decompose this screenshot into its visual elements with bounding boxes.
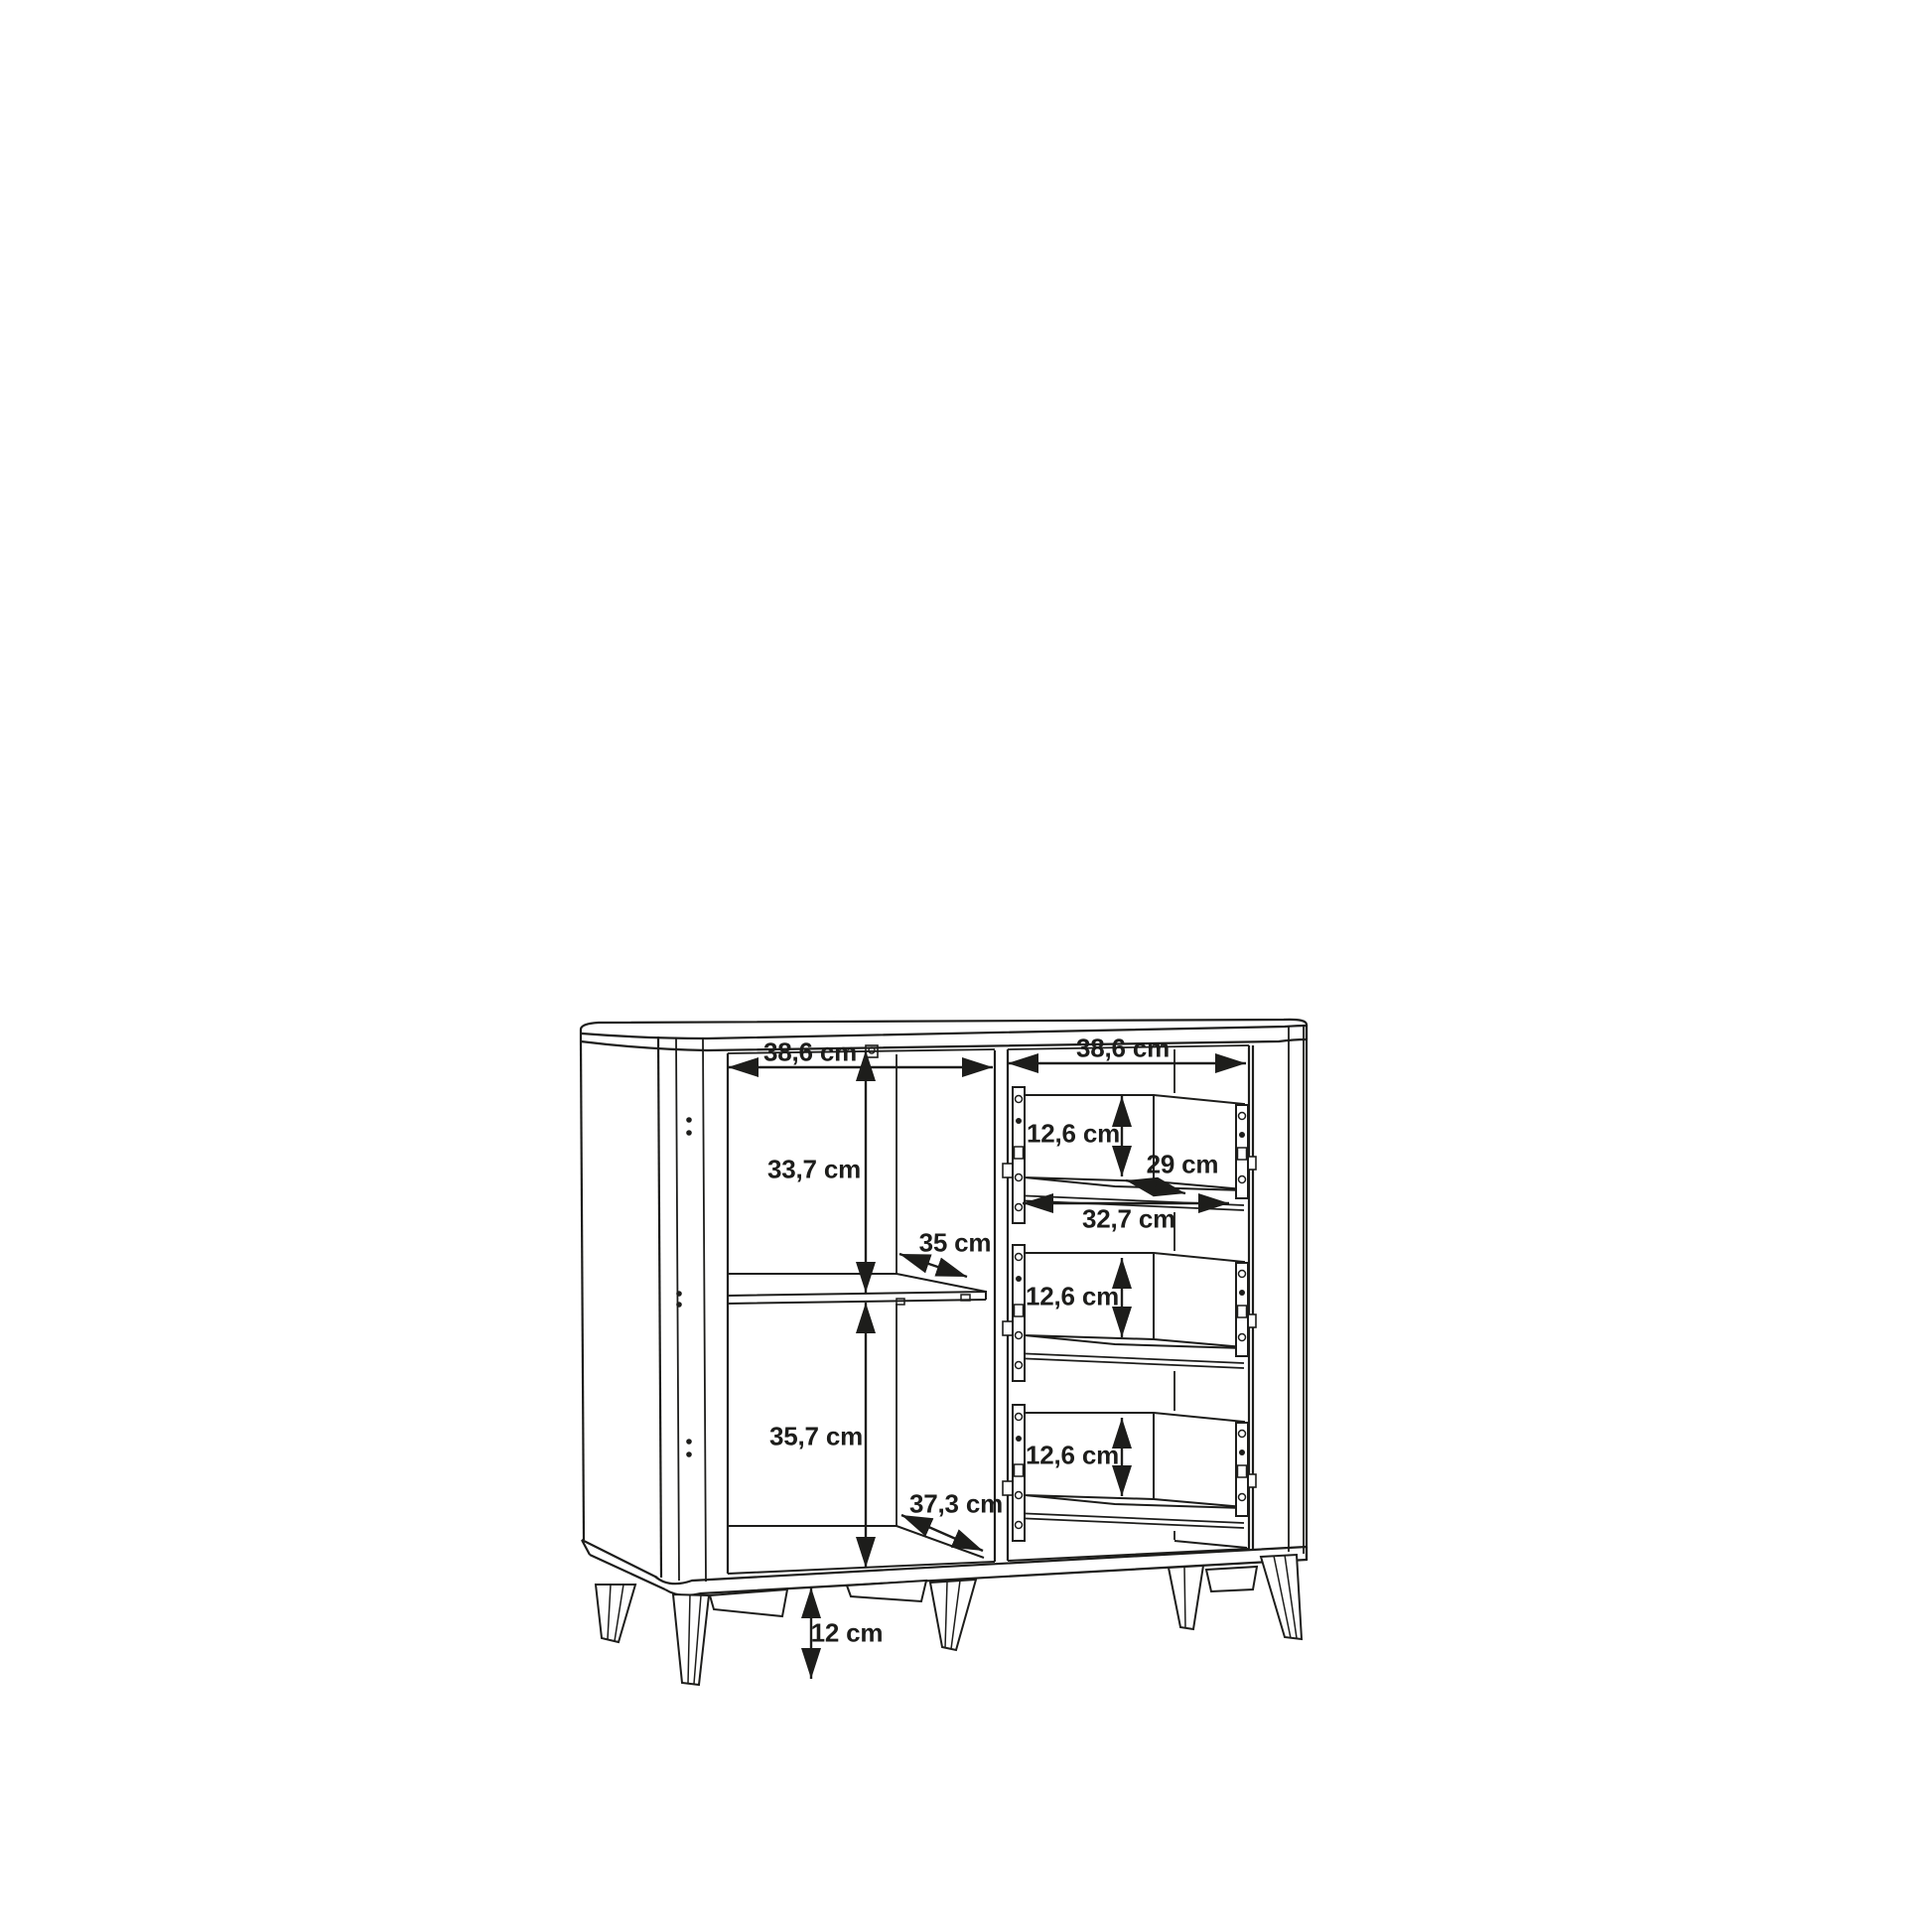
left-side-front-edge — [658, 1036, 661, 1578]
dim-label-drawer-middle-height: 12,6 cm — [1026, 1282, 1119, 1312]
dim-label-left-lower-height: 35,7 cm — [769, 1422, 863, 1452]
leg-bracket-right — [1206, 1567, 1257, 1591]
dim-label-base-depth: 37,3 cm — [909, 1489, 1003, 1520]
shelf-outline — [728, 1274, 986, 1304]
left-side-bottom-edges — [582, 1540, 665, 1589]
left-side-outer-edge — [581, 1041, 584, 1540]
technical-drawing-page: 38,6 cm 38,6 cm 33,7 cm 35 cm 35,7 cm 37… — [0, 0, 1932, 1932]
dim-label-drawer-bottom-height: 12,6 cm — [1026, 1441, 1119, 1471]
dim-label-leg-height: 12 cm — [811, 1618, 884, 1649]
front-right-stile-lines — [1289, 1025, 1304, 1554]
top-panel-underside — [581, 1039, 1307, 1050]
dim-label-left-upper-height: 33,7 cm — [767, 1155, 861, 1185]
dim-label-shelf-depth: 35 cm — [919, 1228, 992, 1259]
leg-bracket-left — [710, 1589, 787, 1616]
front-left-leg — [673, 1594, 709, 1685]
dim-label-left-section-width: 38,6 cm — [763, 1037, 857, 1068]
back-right-leg-taper-line — [1184, 1567, 1185, 1628]
cabinet-line-drawing — [0, 0, 1932, 1932]
dim-label-drawer-width: 32,7 cm — [1082, 1204, 1175, 1235]
right-inner-wall-edges — [1249, 1045, 1253, 1549]
top-panel — [581, 1020, 1307, 1053]
drawer-middle — [1003, 1245, 1256, 1381]
top-panel-front-edge — [582, 1026, 1307, 1038]
dim-label-drawer-depth: 29 cm — [1147, 1150, 1219, 1180]
drawer-bottom — [1003, 1405, 1256, 1541]
legs — [596, 1555, 1302, 1685]
middle-shelf — [728, 1274, 986, 1305]
dim-label-right-section-width: 38,6 cm — [1076, 1034, 1170, 1064]
fittings — [676, 1045, 878, 1457]
dim-label-drawer-top-height: 12,6 cm — [1027, 1119, 1120, 1150]
